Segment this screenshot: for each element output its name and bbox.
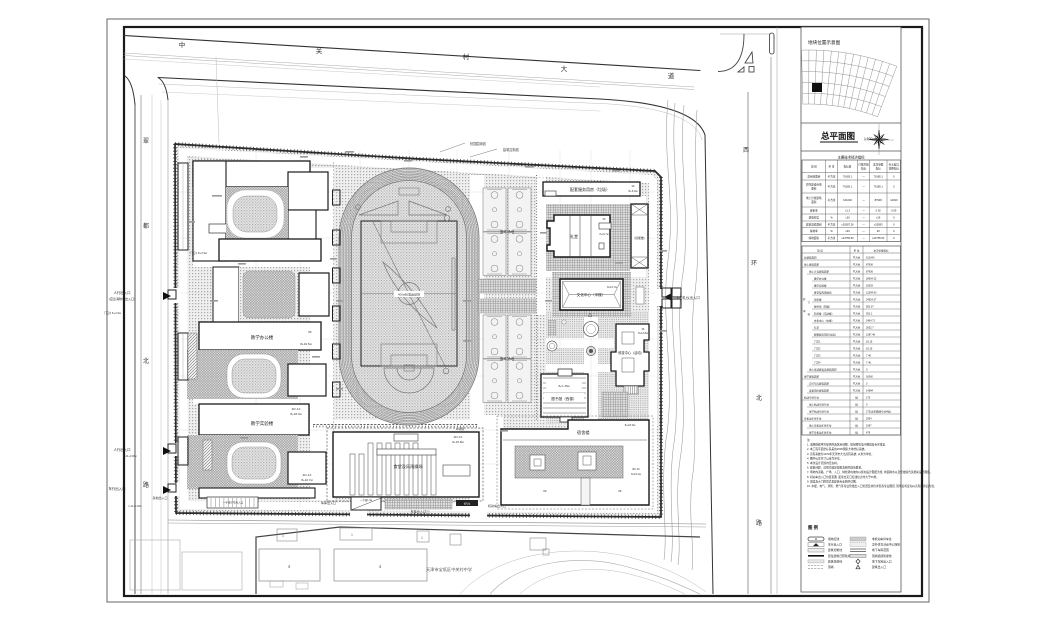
svg-text:175: 175 — [866, 396, 871, 399]
svg-text:5F: 5F — [308, 330, 312, 334]
svg-text:礼堂: 礼堂 — [814, 325, 820, 329]
svg-text:8+19.1м: 8+19.1м — [631, 472, 641, 476]
svg-text:—: — — [862, 199, 865, 202]
svg-text:—: — — [862, 186, 865, 189]
svg-text:1. 本图依据甲方提供所选区用地图、现状图等电子图纸及有关批: 1. 本图依据甲方提供所选区用地图、现状图等电子图纸及有关批复, — [807, 443, 886, 447]
svg-text:总用地面积: 总用地面积 — [807, 174, 820, 178]
svg-text:—: — — [862, 210, 865, 213]
svg-text:—: — — [862, 217, 865, 220]
svg-text:923.1: 923.1 — [866, 312, 873, 315]
svg-text:平方米: 平方米 — [828, 198, 836, 202]
svg-text:1: 1 — [421, 536, 423, 540]
svg-text:地下机动车停车位: 地下机动车停车位 — [809, 409, 830, 413]
svg-text:关: 关 — [316, 46, 323, 55]
svg-text:平方米: 平方米 — [853, 269, 861, 273]
svg-text:平方米: 平方米 — [853, 381, 861, 385]
svg-text:1:500: 1:500 — [864, 137, 873, 141]
svg-text:建筑轮廓线: 建筑轮廓线 — [828, 559, 842, 563]
svg-text:图书馆（西楼）: 图书馆（西楼） — [814, 304, 832, 308]
svg-text:界内建设用地: 界内建设用地 — [806, 183, 822, 187]
svg-text:平方米: 平方米 — [853, 276, 861, 280]
svg-text:0.92: 0.92 — [876, 209, 882, 213]
svg-text:101040: 101040 — [843, 198, 852, 202]
svg-text:—: — — [862, 230, 865, 233]
svg-text:175(含无障碍车位4辆): 175(含无障碍车位4辆) — [866, 409, 891, 413]
svg-text:礼堂: 礼堂 — [570, 233, 578, 239]
svg-text:平方米: 平方米 — [853, 255, 861, 259]
svg-text:建筑基底面积: 建筑基底面积 — [806, 222, 822, 226]
svg-text:18.15: 18.15 — [866, 347, 873, 350]
svg-text:79185.1: 79185.1 — [874, 174, 884, 178]
svg-text:—: — — [862, 237, 865, 240]
svg-text:基地出入口: 基地出入口 — [152, 495, 167, 500]
svg-text:2. 本工程平面坐标系采用2000国家大地坐标系统。: 2. 本工程平面坐标系采用2000国家大地坐标系统。 — [807, 447, 867, 451]
svg-text:4F/-1F: 4F/-1F — [292, 407, 301, 411]
svg-text:图书馆（西楼）: 图书馆（西楼） — [551, 396, 576, 401]
svg-text:本次申报: 本次申报 — [873, 163, 884, 167]
svg-text:指标值: 指标值 — [844, 165, 852, 169]
svg-text:平方米: 平方米 — [853, 283, 861, 287]
svg-text:79185.1: 79185.1 — [843, 174, 853, 178]
svg-text:建筑控制线: 建筑控制线 — [503, 147, 520, 152]
svg-text:总平面图: 总平面图 — [821, 131, 855, 141]
svg-text:平方米: 平方米 — [853, 304, 861, 308]
svg-text:一半地下车库入口: 一半地下车库入口 — [223, 501, 244, 505]
svg-text:≥23755.53: ≥23755.53 — [872, 236, 885, 240]
svg-text:7.46: 7.46 — [866, 361, 871, 364]
svg-text:文化中心（中楼）: 文化中心（中楼） — [814, 318, 834, 322]
svg-text:用地红线: 用地红线 — [828, 537, 839, 541]
svg-text:400м标准运动场: 400м标准运动场 — [398, 292, 420, 297]
svg-text:79185.1: 79185.1 — [843, 185, 853, 189]
svg-text:1.24+0.08м: 1.24+0.08м — [123, 454, 137, 458]
svg-text:门卫2 8+3.9м: 门卫2 8+3.9м — [104, 311, 121, 315]
svg-text:单 位: 单 位 — [854, 248, 860, 252]
svg-text:单 位: 单 位 — [829, 165, 835, 169]
svg-text:非机动车停车位: 非机动车停车位 — [804, 416, 822, 420]
svg-text:6F: 6F — [543, 489, 547, 493]
svg-text:篮球场地: 篮球场地 — [500, 229, 515, 234]
svg-text:宿舍楼: 宿舍楼 — [814, 297, 822, 301]
svg-text:篮球场地: 篮球场地 — [500, 356, 515, 361]
svg-text:路: 路 — [143, 481, 149, 489]
svg-text:≤1.2: ≤1.2 — [845, 209, 851, 213]
svg-text:地上建筑面积: 地上建筑面积 — [804, 262, 820, 266]
svg-text:地上核减建设容建筑面积: 地上核减建设容建筑面积 — [809, 367, 837, 371]
svg-text:地下建筑面积: 地下建筑面积 — [804, 374, 820, 378]
svg-text:≤20583: ≤20583 — [874, 222, 883, 226]
svg-text:教学办公楼: 教学办公楼 — [814, 276, 827, 280]
svg-text:大: 大 — [561, 64, 568, 73]
svg-text:平方米: 平方米 — [853, 297, 861, 301]
svg-text:自行车库建筑面积: 自行车库建筑面积 — [809, 381, 830, 385]
svg-text:≥30: ≥30 — [845, 229, 850, 233]
svg-text:面积: 面积 — [811, 200, 817, 204]
svg-text:4. 图中标注尺寸以米为单位。: 4. 图中标注尺寸以米为单位。 — [807, 456, 842, 460]
svg-text:2054: 2054 — [866, 417, 872, 420]
svg-text:0.09: 0.09 — [891, 209, 897, 213]
svg-text:3F/-1F: 3F/-1F — [632, 467, 640, 471]
svg-text:8+13.7м: 8+13.7м — [607, 285, 617, 289]
svg-text:宿舍楼: 宿舍楼 — [577, 429, 590, 436]
svg-text:平方米: 平方米 — [853, 262, 861, 266]
svg-text:地上非机动车停车位: 地上非机动车停车位 — [809, 423, 832, 427]
svg-text:室外体育活动中心场地: 室外体育活动中心场地 — [872, 543, 900, 547]
svg-text:8+18.3м: 8+18.3м — [290, 412, 301, 416]
svg-text:北: 北 — [143, 357, 149, 365]
svg-text:2464.71: 2464.71 — [866, 319, 876, 322]
svg-text:7.46: 7.46 — [866, 354, 871, 357]
svg-text:图 例: 图 例 — [808, 524, 819, 531]
svg-text:地下车库范围: 地下车库范围 — [872, 548, 889, 552]
svg-text:绿地面积: 绿地面积 — [809, 236, 820, 240]
svg-text:围墙: 围墙 — [828, 565, 834, 569]
svg-text:(功能楼): (功能楼) — [634, 236, 644, 240]
svg-text:87936: 87936 — [866, 270, 874, 273]
svg-text:平方米: 平方米 — [853, 360, 861, 364]
svg-text:教学办公楼: 教学办公楼 — [251, 334, 274, 341]
svg-text:平方米: 平方米 — [853, 290, 861, 294]
svg-text:平方米: 平方米 — [828, 236, 836, 240]
svg-text:7. 场地内道路、广场、入口、绿化竖向坡向以竖向设计图纸为准: 7. 场地内道路、广场、入口、绿化竖向坡向以竖向设计图纸为准, 地面排水以及管线… — [807, 470, 932, 474]
svg-text:479: 479 — [866, 431, 871, 434]
svg-text:平方米: 平方米 — [853, 325, 861, 329]
svg-text:1: 1 — [282, 534, 284, 538]
svg-text:一半坡1.4м: 一半坡1.4м — [360, 498, 372, 502]
svg-text:居住建筑日照轮廓线: 居住建筑日照轮廓线 — [828, 554, 853, 558]
svg-text:1: 1 — [351, 533, 353, 537]
svg-text:≤20587.26: ≤20587.26 — [841, 222, 854, 226]
svg-text:项 目: 项 目 — [811, 165, 817, 169]
svg-text:科技中心（活动）: 科技中心（活动） — [618, 350, 644, 355]
svg-text:车行出入口: 车行出入口 — [828, 543, 842, 547]
svg-text:79185.1: 79185.1 — [874, 185, 884, 189]
svg-text:建筑出入口: 建筑出入口 — [872, 565, 886, 569]
svg-text:注:: 注: — [807, 438, 811, 442]
svg-text:人行出入口: 人行出入口 — [114, 447, 131, 452]
svg-text:地下非机动车停车位: 地下非机动车停车位 — [809, 430, 832, 434]
svg-text:1287.46: 1287.46 — [866, 333, 876, 336]
svg-text:门卫3: 门卫3 — [814, 353, 821, 357]
svg-text:8. 机动车出入口位置见图, 距离交叉口红线切点均大于50米: 8. 机动车出入口位置见图, 距离交叉口红线切点均大于50米。 — [807, 475, 879, 479]
svg-text:翠: 翠 — [143, 138, 149, 145]
svg-text:平方米: 平方米 — [853, 367, 861, 371]
svg-text:容积率: 容积率 — [810, 209, 818, 213]
svg-text:1.24+0.06м: 1.24+0.06м — [128, 504, 142, 508]
svg-text:门卫1 8+3.9м: 门卫1 8+3.9м — [190, 251, 207, 255]
svg-text:设备用房建筑面积: 设备用房建筑面积 — [809, 388, 830, 392]
svg-text:地上计容建筑面积: 地上计容建筑面积 — [809, 269, 830, 273]
svg-text:平方米: 平方米 — [853, 339, 861, 343]
svg-text:车库出入口: 车库出入口 — [321, 500, 336, 505]
svg-text:3F: 3F — [641, 327, 644, 331]
svg-text:门卫2: 门卫2 — [814, 346, 821, 350]
svg-text:8+22.0м: 8+22.0м — [625, 423, 636, 427]
svg-text:环: 环 — [751, 260, 757, 267]
svg-text:门卫1: 门卫1 — [814, 339, 821, 343]
svg-text:≤26: ≤26 — [845, 216, 850, 220]
svg-text:建筑密度: 建筑密度 — [809, 216, 820, 220]
svg-text:路: 路 — [756, 519, 762, 527]
svg-text:指标: 指标 — [876, 167, 882, 171]
svg-text:8+21.7м: 8+21.7м — [599, 233, 608, 236]
svg-text:平方米: 平方米 — [853, 353, 861, 357]
svg-text:平方米: 平方米 — [853, 332, 861, 336]
svg-text:87936: 87936 — [875, 198, 883, 202]
svg-text:配套服务用房(垃圾): 配套服务用房(垃圾) — [814, 332, 836, 336]
svg-text:配套服务用房（垃圾）: 配套服务用房（垃圾） — [570, 186, 610, 192]
svg-text:≤26: ≤26 — [876, 216, 881, 220]
svg-text:平方米: 平方米 — [828, 185, 836, 189]
svg-text:平方米: 平方米 — [828, 222, 836, 226]
svg-text:平方米: 平方米 — [828, 174, 836, 178]
svg-text:3. 高程系统为1972年天津市大沽高程系统, 以米为单位。: 3. 高程系统为1972年天津市大沽高程系统, 以米为单位。 — [807, 452, 874, 456]
svg-text:平方米: 平方米 — [853, 374, 861, 378]
svg-text:车行出入口: 车行出入口 — [109, 486, 126, 491]
svg-text:教学实验楼: 教学实验楼 — [814, 283, 827, 287]
svg-text:3052.7: 3052.7 — [866, 326, 874, 329]
svg-text:—: — — [862, 223, 865, 226]
svg-text:地上机动车停车位: 地上机动车停车位 — [809, 402, 830, 406]
svg-text:8+22.7м: 8+22.7м — [301, 478, 312, 482]
svg-text:北: 北 — [756, 394, 762, 402]
svg-text:绿地率: 绿地率 — [810, 229, 818, 233]
svg-text:28904.32: 28904.32 — [866, 277, 877, 280]
svg-text:车库出入口①: 车库出入口① — [410, 509, 430, 514]
svg-text:16060: 16060 — [866, 375, 874, 378]
svg-text:西: 西 — [743, 147, 749, 154]
svg-text:6. 建筑间距、日照均满足规划及相关规范要求。: 6. 建筑间距、日照均满足规划及相关规范要求。 — [807, 466, 864, 470]
svg-text:门卫4: 门卫4 — [814, 360, 821, 364]
svg-text:14584: 14584 — [866, 389, 874, 392]
svg-text:文化中心（中楼）: 文化中心（中楼） — [577, 292, 606, 297]
svg-text:都: 都 — [143, 222, 149, 230]
svg-text:12394.93: 12394.93 — [866, 291, 877, 294]
svg-text:8+15.8м: 8+15.8м — [452, 440, 463, 444]
svg-text:本次申报指标: 本次申报指标 — [873, 248, 889, 252]
svg-text:2F/-1F: 2F/-1F — [454, 435, 463, 439]
svg-text:食堂及风雨操场: 食堂及风雨操场 — [393, 463, 422, 470]
svg-text:食堂及风雨操场: 食堂及风雨操场 — [814, 290, 832, 294]
svg-text:≥23755.53: ≥23755.53 — [841, 236, 854, 240]
svg-text:平方米: 平方米 — [853, 311, 861, 315]
svg-text:建筑控制线: 建筑控制线 — [828, 548, 842, 552]
svg-text:围墙遮挡轮廓线: 围墙遮挡轮廓线 — [872, 554, 892, 558]
svg-text:563.37: 563.37 — [866, 305, 874, 308]
svg-text:地块位置示意图: 地块位置示意图 — [808, 39, 841, 46]
svg-text:14040: 14040 — [890, 198, 898, 202]
svg-text:10. 水暖、电气、消防、燃气等专业管线出入口位置及井位详见: 10. 水暖、电气、消防、燃气等专业管线出入口位置及井位详见各专业图纸, 现场如… — [807, 484, 937, 488]
svg-text:调整指标: 调整指标 — [889, 167, 900, 171]
svg-text:教学实验楼: 教学实验楼 — [251, 420, 274, 427]
svg-text:项 目: 项 目 — [817, 248, 823, 252]
svg-text:校园围墙线: 校园围墙线 — [470, 141, 487, 146]
svg-text:道: 道 — [668, 71, 675, 80]
svg-text:8+14.8м: 8+14.8м — [638, 331, 648, 335]
svg-text:2F: 2F — [602, 217, 605, 221]
svg-text:8+19.5м: 8+19.5м — [300, 342, 311, 346]
svg-text:8+C.45м: 8+C.45м — [558, 384, 569, 388]
svg-text:1F轮廓: 1F轮廓 — [456, 427, 465, 431]
svg-text:4F/-1F: 4F/-1F — [303, 473, 312, 477]
svg-text:87936: 87936 — [866, 263, 874, 266]
svg-text:指标: 指标 — [861, 167, 867, 171]
svg-text:主要技术经济指标: 主要技术经济指标 — [837, 155, 865, 160]
svg-text:1567: 1567 — [866, 424, 872, 427]
svg-text:—: — — [862, 175, 865, 178]
svg-text:有无差异: 有无差异 — [889, 163, 900, 167]
svg-text:非机动车停车位: 非机动车停车位 — [872, 537, 892, 541]
svg-text:18.15: 18.15 — [866, 340, 873, 343]
svg-text:科技楼（活动楼）: 科技楼（活动楼） — [814, 311, 834, 315]
svg-text:18329: 18329 — [866, 284, 874, 287]
svg-text:平方米: 平方米 — [853, 318, 861, 322]
svg-text:地下车库出入口: 地下车库出入口 — [872, 559, 892, 563]
svg-text:人行出入口: 人行出入口 — [114, 290, 131, 295]
svg-text:已批控规: 已批控规 — [858, 163, 869, 167]
svg-text:8+6.0м: 8+6.0м — [629, 189, 638, 193]
svg-text:5. 本次设计范围内无古树。: 5. 本次设计范围内无古树。 — [807, 461, 840, 465]
svg-text:9. 围墙及大门的形式见建筑专业相关详图。: 9. 围墙及大门的形式见建筑专业相关详图。 — [807, 479, 858, 483]
svg-text:6F: 6F — [618, 489, 622, 493]
svg-text:机动车停车位: 机动车停车位 — [804, 395, 820, 399]
svg-text:总建筑面积: 总建筑面积 — [804, 255, 817, 259]
svg-text:平方米: 平方米 — [853, 346, 861, 350]
svg-text:平方米: 平方米 — [853, 388, 861, 392]
svg-text:1F: 1F — [631, 184, 635, 188]
svg-text:村: 村 — [463, 52, 470, 61]
svg-text:(应急消防车出入口): (应急消防车出入口) — [109, 296, 135, 301]
svg-text:天津市宝坻区中关村中学: 天津市宝坻区中关村中学 — [426, 566, 472, 573]
svg-text:101040: 101040 — [866, 256, 875, 259]
svg-text:机动车出入口: 机动车出入口 — [488, 503, 506, 508]
svg-text:24924.37: 24924.37 — [866, 298, 877, 301]
svg-text:中: 中 — [179, 40, 186, 49]
svg-text:面积: 面积 — [811, 187, 817, 191]
svg-text:地上计容建筑: 地上计容建筑 — [806, 196, 822, 200]
